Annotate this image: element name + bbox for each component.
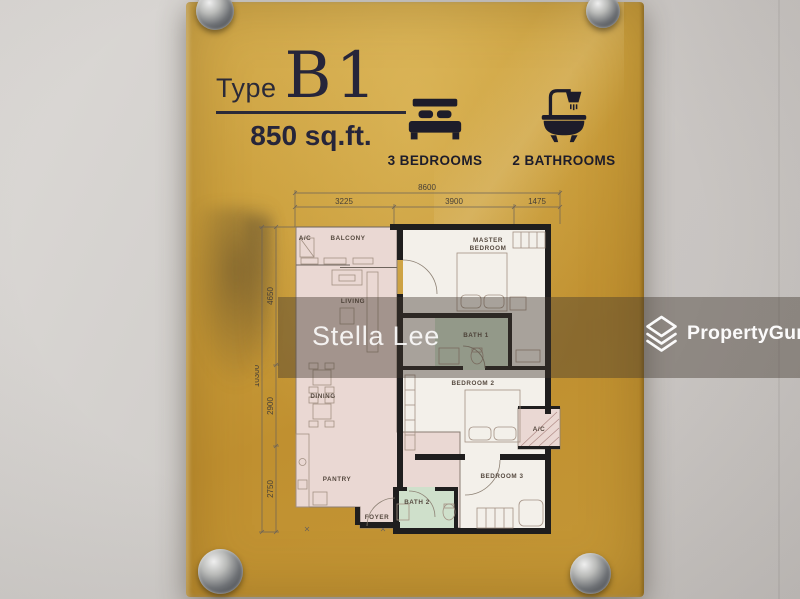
- dim-left-seg2: 2900: [266, 397, 275, 415]
- photo-scene: Type B1 850 sq.ft. 3 BEDROOMS: [0, 0, 800, 599]
- dim-top-seg1: 3225: [335, 197, 353, 206]
- standoff-bolt-bottom-left: [198, 549, 243, 594]
- propertyguru-badge: PropertyGuru: [643, 314, 800, 352]
- label-master-2: BEDROOM: [470, 245, 507, 252]
- label-pantry: PANTRY: [323, 476, 352, 483]
- feature-bedrooms: 3 BEDROOMS: [380, 98, 490, 168]
- label-balcony: BALCONY: [331, 235, 366, 242]
- watermark-band: Stella Lee PropertyGuru: [278, 297, 800, 378]
- dim-top-total: 8600: [418, 183, 436, 192]
- unit-type-block: Type B1 850 sq.ft.: [216, 46, 406, 152]
- bed-icon: [404, 98, 466, 144]
- label-ac-service: A/C: [533, 426, 546, 433]
- dim-left-seg3: 2750: [266, 480, 275, 498]
- propertyguru-logo-icon: [643, 314, 680, 352]
- label-bedroom2: BEDROOM 2: [451, 380, 494, 387]
- propertyguru-logo-text: PropertyGuru: [687, 322, 800, 345]
- dim-left-total: 10300: [255, 364, 261, 387]
- standoff-bolt-bottom-right: [570, 553, 611, 594]
- label-master-1: MASTER: [473, 237, 503, 244]
- bath2-room: [395, 487, 458, 534]
- dim-top-seg3: 1475: [528, 197, 546, 206]
- bathrooms-count-label: 2 BATHROOMS: [506, 153, 622, 168]
- unit-type-code: B1: [285, 46, 381, 107]
- bedrooms-count-label: 3 BEDROOMS: [380, 153, 490, 168]
- unit-type-label: Type: [216, 73, 277, 104]
- dim-left-seg1: 4650: [266, 287, 275, 305]
- label-ac-balcony: A/C: [299, 235, 312, 242]
- dim-top-seg2: 3900: [445, 197, 463, 206]
- unit-area: 850 sq.ft.: [216, 120, 406, 152]
- bathtub-icon: [538, 84, 590, 144]
- agent-watermark: Stella Lee: [312, 321, 440, 352]
- feature-bathrooms: 2 BATHROOMS: [506, 84, 622, 168]
- label-dining: DINING: [310, 393, 335, 400]
- label-bedroom3: BEDROOM 3: [480, 473, 523, 480]
- label-bath2: BATH 2: [404, 499, 430, 506]
- standoff-bolt-top-left: [196, 0, 234, 30]
- label-foyer: FOYER: [365, 514, 389, 521]
